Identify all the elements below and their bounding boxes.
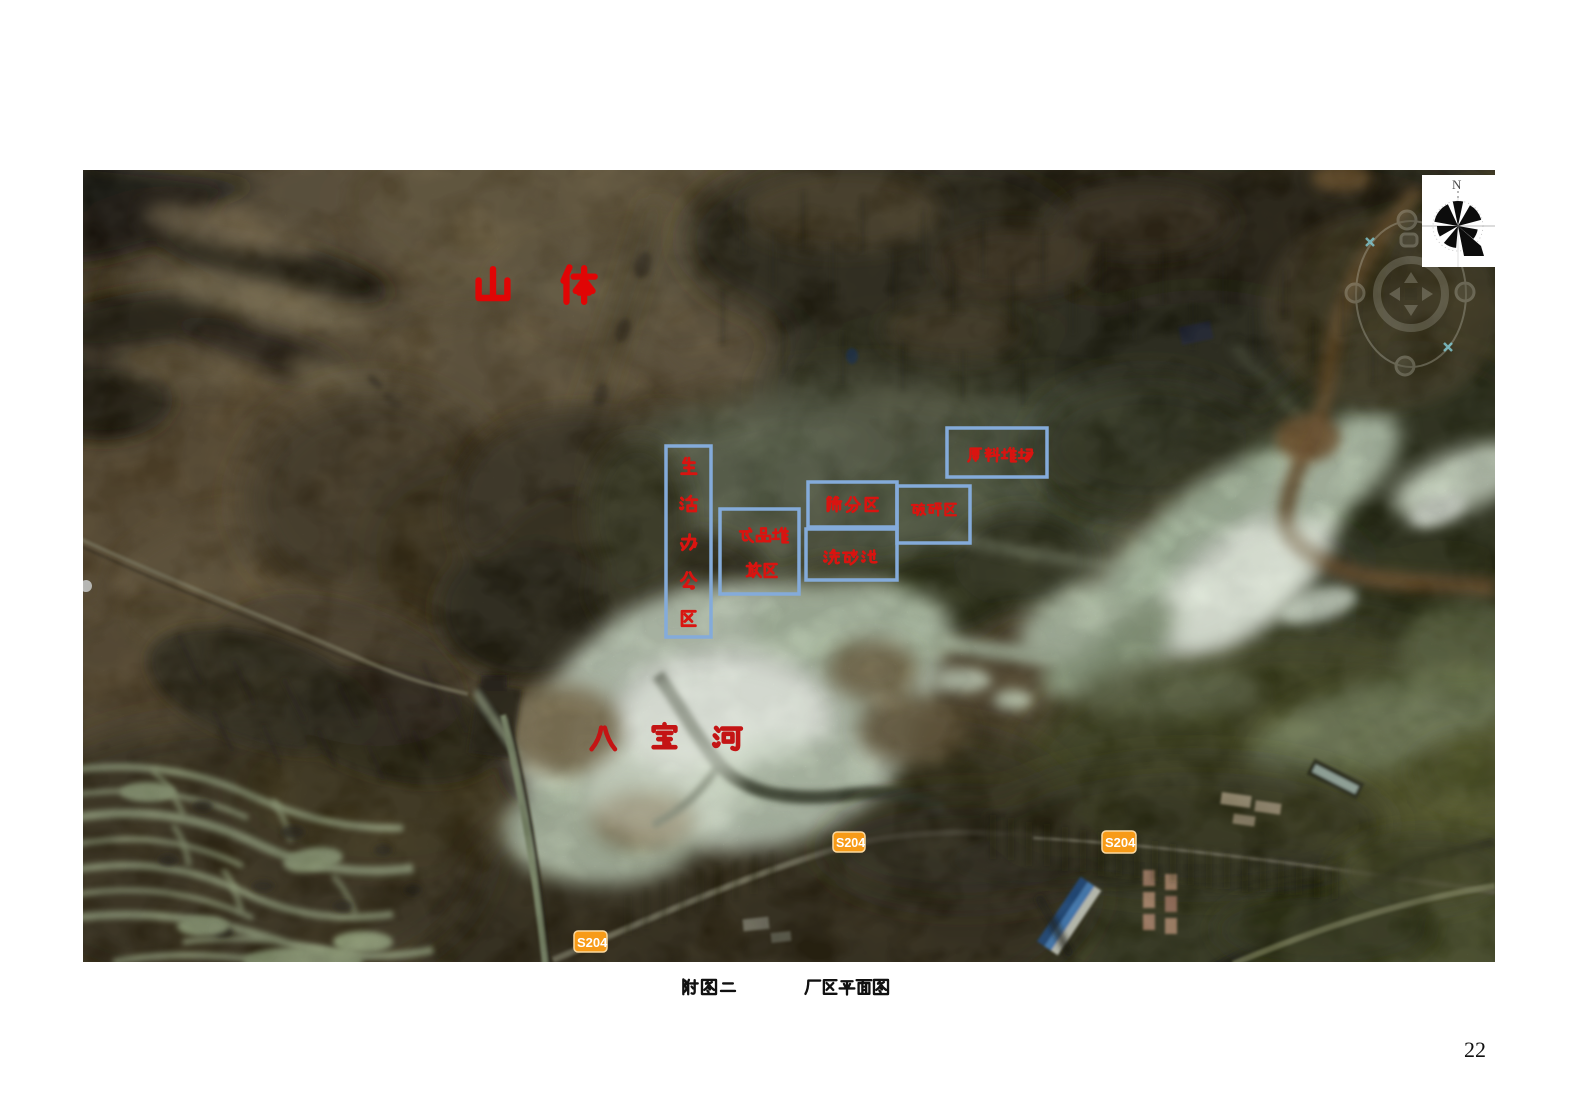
svg-text:S204: S204 — [1105, 835, 1136, 850]
svg-text:S204: S204 — [836, 836, 865, 850]
svg-text:S204: S204 — [577, 935, 608, 950]
svg-text:N: N — [1452, 177, 1462, 192]
